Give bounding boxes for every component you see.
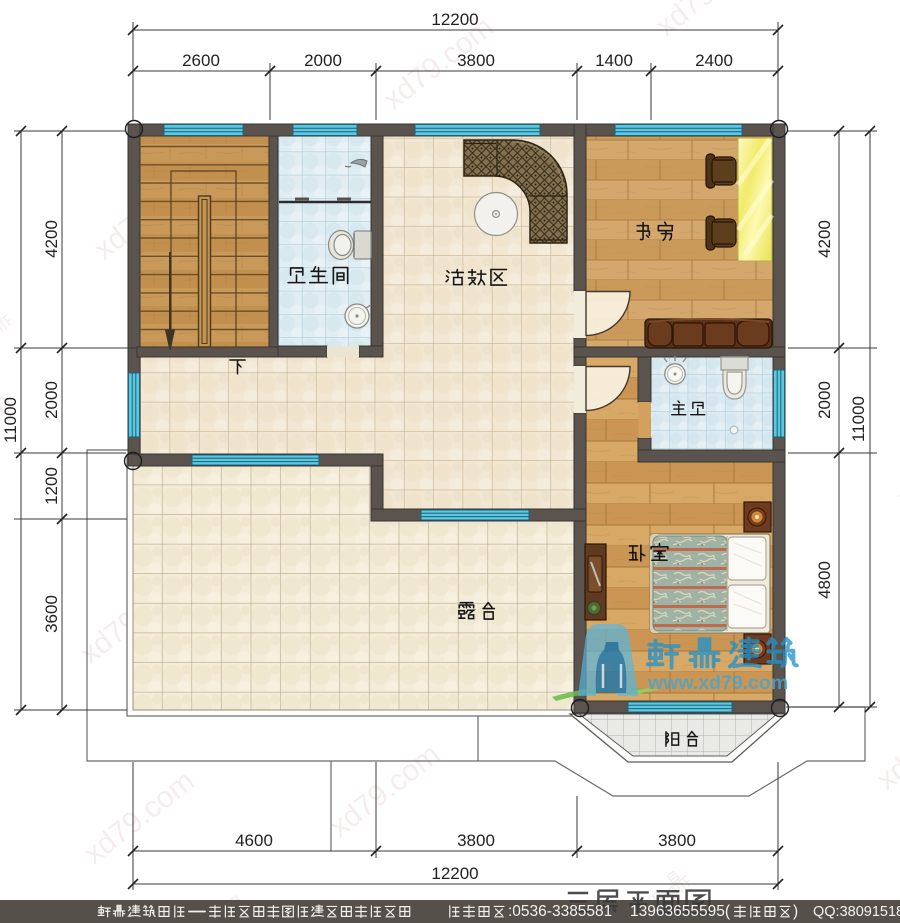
svg-text:3800: 3800 — [457, 51, 495, 70]
svg-text:QQ:38091518: QQ:38091518 — [813, 904, 900, 920]
svg-text:1400: 1400 — [595, 51, 633, 70]
svg-text:4200: 4200 — [815, 220, 834, 258]
svg-text:3800: 3800 — [658, 831, 696, 850]
svg-text:4600: 4600 — [235, 831, 273, 850]
svg-text:13963655595(: 13963655595( — [630, 903, 731, 920]
svg-text:12200: 12200 — [431, 10, 478, 29]
svg-text:11000: 11000 — [849, 396, 868, 442]
svg-text::0536-3385581: :0536-3385581 — [508, 903, 612, 920]
svg-text:2000: 2000 — [304, 51, 342, 70]
svg-text:4800: 4800 — [815, 561, 834, 599]
svg-text:www.xd79.com: www.xd79.com — [647, 672, 788, 694]
svg-text:2000: 2000 — [42, 381, 61, 419]
svg-text:2400: 2400 — [695, 51, 733, 70]
svg-text:2000: 2000 — [815, 381, 834, 419]
svg-text:3600: 3600 — [42, 595, 61, 633]
svg-text:1200: 1200 — [42, 467, 61, 505]
svg-text:3800: 3800 — [457, 831, 495, 850]
svg-text:4200: 4200 — [42, 220, 61, 258]
svg-text:11000: 11000 — [1, 397, 20, 443]
svg-text:12200: 12200 — [431, 864, 478, 883]
svg-text:2600: 2600 — [182, 51, 220, 70]
svg-text:): ) — [793, 903, 798, 920]
